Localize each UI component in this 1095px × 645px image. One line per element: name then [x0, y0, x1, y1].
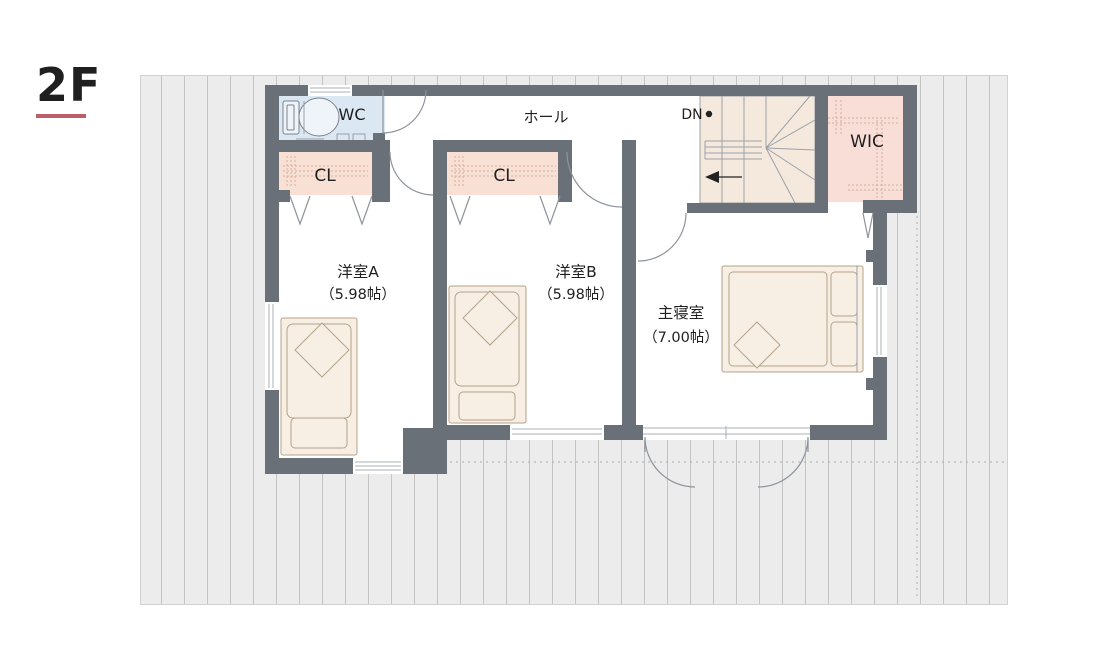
- bed-single-a: [281, 318, 357, 455]
- closet-a-label: CL: [314, 166, 336, 186]
- bedroom-a-label: 洋室A: [337, 263, 379, 281]
- stairs-start-dot: [706, 111, 712, 117]
- bedroom-b-area: （5.98帖）: [538, 286, 614, 303]
- floor-plan-drawing: WC CL CL ホール DN WIC 洋室A （5.98帖） 洋室B （5.9…: [0, 0, 1095, 645]
- hall-label: ホール: [523, 108, 568, 126]
- master-label: 主寝室: [658, 303, 705, 322]
- bedroom-b-label: 洋室B: [555, 263, 597, 281]
- blanket-a: [291, 418, 347, 448]
- closet-b-label: CL: [493, 166, 515, 186]
- stairs-dn-label: DN: [681, 107, 702, 123]
- bedroom-a-area: （5.98帖）: [320, 286, 396, 303]
- blanket-b: [459, 392, 515, 420]
- pillow-master-2: [831, 322, 857, 366]
- bed-single-b: [449, 286, 526, 423]
- bed-double-master: [722, 266, 863, 372]
- wic-label: WIC: [850, 132, 884, 152]
- wc-label: WC: [339, 105, 366, 124]
- master-area: （7.00帖）: [643, 329, 719, 346]
- floor-plan-page: 2F: [0, 0, 1095, 645]
- pillow-master-1: [831, 272, 857, 316]
